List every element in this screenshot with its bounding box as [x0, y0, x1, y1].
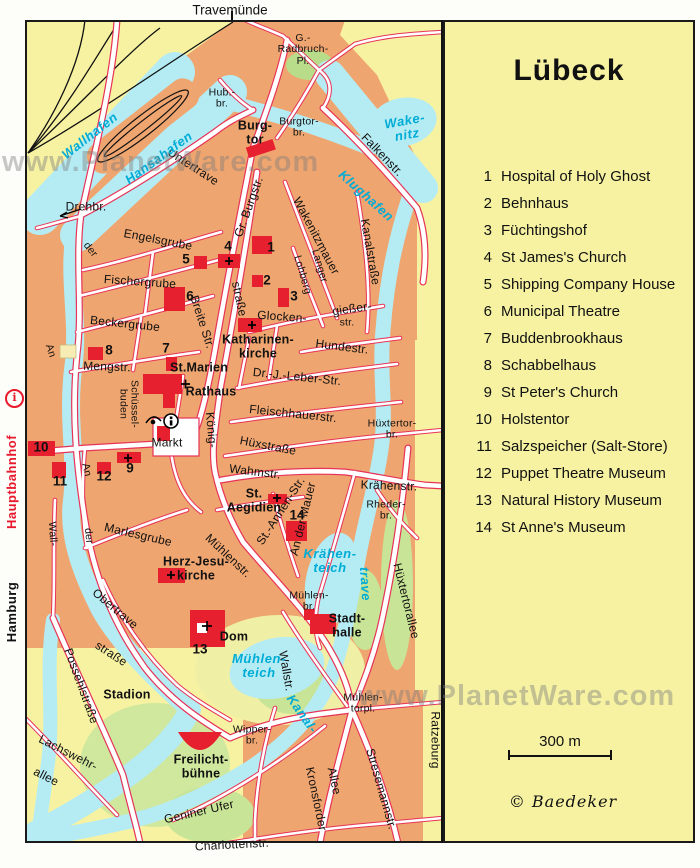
water-label-trave: trave	[357, 567, 373, 602]
place-label-st-marien: St.Marien	[170, 361, 228, 375]
legend-item: 9St Peter's Church	[468, 383, 683, 403]
legend-item-label: Hospital of Holy Ghost	[501, 167, 683, 187]
legend-item-number: 9	[468, 383, 501, 403]
legend-item-label: St Peter's Church	[501, 383, 683, 403]
luebeck-city-map-page: { "watermark": "www.PlanetWare.com", "to…	[0, 0, 700, 868]
legend-title: Lübeck	[443, 54, 695, 88]
marker-number-1: 1	[267, 241, 275, 256]
place-label-katharinenkirche: Katharinen- kirche	[222, 334, 294, 361]
legend-item-label: Behnhaus	[501, 194, 683, 214]
place-label-stadthalle: Stadt- halle	[329, 613, 366, 640]
street-label: str.	[340, 317, 355, 328]
marker-number-7: 7	[162, 342, 170, 357]
legend-item-number: 11	[468, 437, 501, 457]
legend-item-number: 14	[468, 518, 501, 538]
legend-item: 7Buddenbrookhaus	[468, 329, 683, 349]
marker-number-5: 5	[182, 253, 190, 268]
marker-number-2: 2	[263, 274, 271, 289]
legend-item-number: 10	[468, 410, 501, 430]
place-label-stadion: Stadion	[103, 688, 150, 702]
marker-number-10: 10	[33, 441, 48, 456]
scale-bar-label: 300 m	[508, 733, 612, 750]
scale-bar	[508, 755, 612, 757]
bridge-label: Burgtor- br.	[279, 117, 319, 140]
station-info-icon: i	[5, 389, 24, 408]
bridge-label: Drehbr.	[66, 201, 107, 214]
street-label: König-	[203, 412, 219, 449]
legend-item: 12Puppet Theatre Museum	[468, 464, 683, 484]
street-label: Schüssel- buden	[117, 380, 140, 428]
place-label-dom: Dom	[220, 630, 248, 644]
legend-item: 2Behnhaus	[468, 194, 683, 214]
legend-item-number: 6	[468, 302, 501, 322]
bridge-label: Mühlen- br.	[289, 591, 328, 614]
legend-item: 11Salzspeicher (Salt-Store)	[468, 437, 683, 457]
street-label: Wall-	[45, 521, 58, 546]
water-label-muehlenteich: Mühlen- teich	[232, 652, 286, 680]
legend-item: 14St Anne's Museum	[468, 518, 683, 538]
legend-item: 8Schabbelhaus	[468, 356, 683, 376]
street-label: Krähenstr.	[360, 479, 417, 494]
travemuende-rail-tick	[231, 11, 233, 20]
legend-item-number: 4	[468, 248, 501, 268]
legend-item-number: 7	[468, 329, 501, 349]
copyright-notice: © Baedeker	[493, 792, 633, 811]
street-label: Mengstr.	[83, 360, 131, 375]
legend-item-number: 8	[468, 356, 501, 376]
legend-item: 1Hospital of Holy Ghost	[468, 167, 683, 187]
legend-item-number: 1	[468, 167, 501, 187]
place-label-freilichtbuehne: Freilicht- bühne	[174, 754, 229, 781]
place-label-st-aegidien: St. Aegidien	[227, 488, 281, 515]
street-label: Charlottenstr.	[195, 837, 270, 854]
legend-item-label: Puppet Theatre Museum	[501, 464, 683, 484]
marker-number-6: 6	[186, 290, 194, 305]
legend-item-number: 12	[468, 464, 501, 484]
bridge-label: Hub.- br.	[209, 88, 236, 111]
marker-number-8: 8	[105, 344, 113, 359]
marker-number-3: 3	[290, 290, 298, 305]
legend-item-label: Füchtingshof	[501, 221, 683, 241]
watermark-text: www.PlanetWare.com	[2, 146, 319, 179]
legend-item-number: 5	[468, 275, 501, 295]
street-label: der	[82, 528, 95, 545]
legend-item: 10Holstentor	[468, 410, 683, 430]
destination-label-travemuende: Travemünde	[192, 4, 267, 19]
marker-number-13: 13	[192, 643, 207, 658]
legend-item-number: 13	[468, 491, 501, 511]
destination-label-ratzeburg: Ratzeburg	[429, 711, 442, 768]
legend-item: 4St James's Church	[468, 248, 683, 268]
legend-item-number: 3	[468, 221, 501, 241]
legend-item: 13Natural History Museum	[468, 491, 683, 511]
legend-item: 5Shipping Company House	[468, 275, 683, 295]
legend-item-label: St Anne's Museum	[501, 518, 683, 538]
marker-number-14: 14	[289, 509, 304, 524]
hauptbahnhof-label: Hauptbahnhof	[5, 435, 19, 529]
bridge-label: Hüxtertor- br.	[368, 419, 417, 442]
legend-divider	[441, 20, 443, 843]
legend-item-label: Municipal Theatre	[501, 302, 683, 322]
marker-number-12: 12	[96, 470, 111, 485]
street-label: An	[79, 462, 93, 477]
tourist-info-icon	[164, 414, 178, 428]
legend-item-label: Shipping Company House	[501, 275, 683, 295]
legend-item: 6Municipal Theatre	[468, 302, 683, 322]
bridge-label: Wipper- br.	[233, 725, 271, 748]
destination-label-hamburg: Hamburg	[5, 582, 19, 643]
legend-item-label: Salzspeicher (Salt-Store)	[501, 437, 683, 457]
place-label-herz-jesu-kirche: Herz-Jesu- kirche	[163, 556, 229, 583]
legend-item-label: Natural History Museum	[501, 491, 683, 511]
legend-item-label: Schabbelhaus	[501, 356, 683, 376]
marker-number-4: 4	[224, 240, 232, 255]
legend-item-label: St James's Church	[501, 248, 683, 268]
square-label: G.- Radbruch- Pl.	[278, 33, 329, 67]
marker-number-11: 11	[53, 475, 67, 490]
legend-items-list: 1Hospital of Holy Ghost 2Behnhaus 3Fücht…	[468, 167, 683, 545]
bridge-label: Rheder- br.	[366, 500, 405, 523]
place-label-rathaus: Rathaus	[186, 385, 237, 399]
legend-item-label: Holstentor	[501, 410, 683, 430]
legend-item-number: 2	[468, 194, 501, 214]
water-label-kraehenteich: Krähen- teich	[303, 547, 356, 575]
marker-number-9: 9	[126, 462, 134, 477]
street-label: Markt	[152, 437, 183, 450]
legend-item-label: Buddenbrookhaus	[501, 329, 683, 349]
legend-item: 3Füchtingshof	[468, 221, 683, 241]
place-label-burgtor: Burg- tor	[238, 120, 272, 147]
watermark-text: www.PlanetWare.com	[358, 680, 675, 713]
